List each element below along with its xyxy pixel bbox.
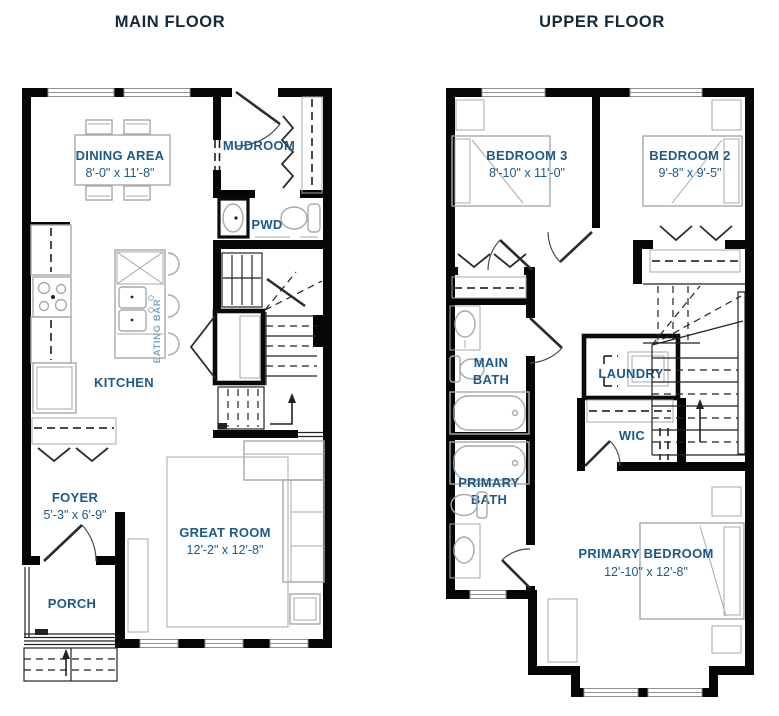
floorplan-svg: MAIN FLOOR [0,0,779,716]
window [124,89,190,97]
great-room-dims: 12'-2" x 12'-8" [187,543,264,557]
primary-bath-label-2: BATH [471,492,507,507]
window [630,89,702,97]
window [140,640,178,648]
eating-bar-label: EATING BAR [152,299,163,363]
bedroom2-label: BEDROOM 2 [649,148,730,163]
dining-dims: 8'-0" x 11'-8" [85,166,154,180]
entry-door-opening [232,87,278,98]
window [584,689,638,697]
foyer-dims: 5'-3" x 6'-9" [44,508,107,522]
pwd-label: PWD [251,217,282,232]
bedroom3-dims: 8'-10" x 11'-0" [489,166,565,180]
laundry-label: LAUNDRY [598,366,663,381]
main-bath-label-1: MAIN [474,355,508,370]
window [205,640,243,648]
window [48,89,114,97]
upper-floor-title: UPPER FLOOR [539,13,665,31]
fridge-icon [33,363,76,413]
kitchen-label: KITCHEN [94,375,154,390]
porch-label: PORCH [48,596,96,611]
great-room-label: GREAT ROOM [179,525,271,540]
primary-bedroom-label: PRIMARY BEDROOM [578,546,713,561]
bedroom2-dims: 9'-8" x 9'-5" [659,166,722,180]
primary-bedroom-dims: 12'-10" x 12'-8" [604,565,688,579]
window [648,689,702,697]
laundry: LAUNDRY [584,336,678,398]
window [270,640,308,648]
bedroom3-label: BEDROOM 3 [486,148,567,163]
stove-icon [33,277,71,317]
dining-label: DINING AREA [76,148,165,163]
window [470,591,506,599]
floorplan-page: MAIN FLOOR [0,0,779,716]
wic-label: WIC [619,428,645,443]
foyer-label: FOYER [52,490,99,505]
main-floor-title: MAIN FLOOR [115,13,226,31]
primary-bath-label-1: PRIMARY [458,475,520,490]
main-bath-label-2: BATH [473,372,509,387]
mudroom-label: MUDROOM [223,138,295,153]
window [482,89,545,97]
